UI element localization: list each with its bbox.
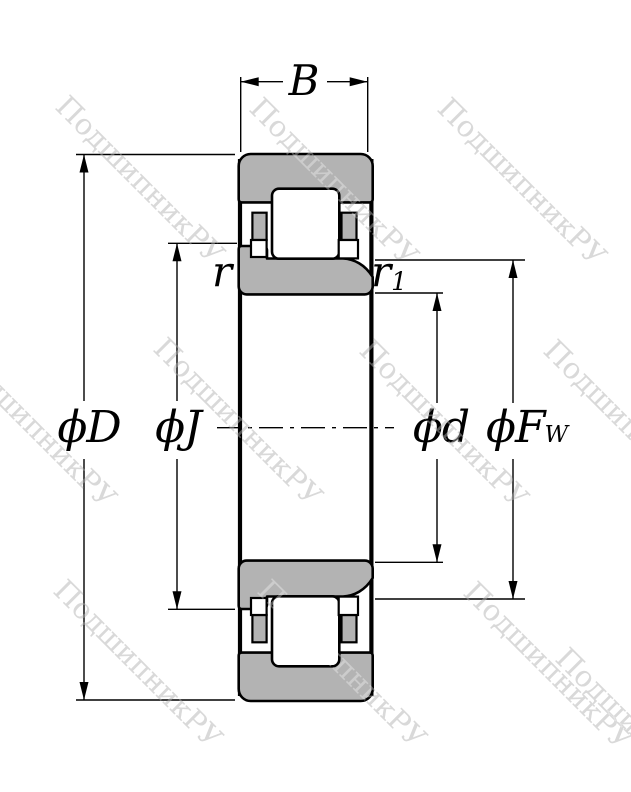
label-flange-diameter: ϕJ — [155, 402, 204, 453]
label-chamfer-r1-sub: 1 — [391, 267, 407, 296]
cage-pocket-left — [251, 240, 267, 257]
bearing-drawing-page: ПодшипникРУПодшипникРУПодшипникРУПодшипн… — [0, 0, 631, 792]
cage-bar-left — [252, 213, 266, 240]
label-raceway-diameter-base: ϕF — [486, 402, 547, 453]
label-width-B: B — [288, 56, 320, 105]
cage-pocket-right — [339, 240, 358, 258]
bearing-technical-drawing: ПодшипникРУПодшипникРУПодшипникРУПодшипн… — [0, 0, 631, 792]
label-raceway-diameter-sub: W — [545, 422, 571, 448]
